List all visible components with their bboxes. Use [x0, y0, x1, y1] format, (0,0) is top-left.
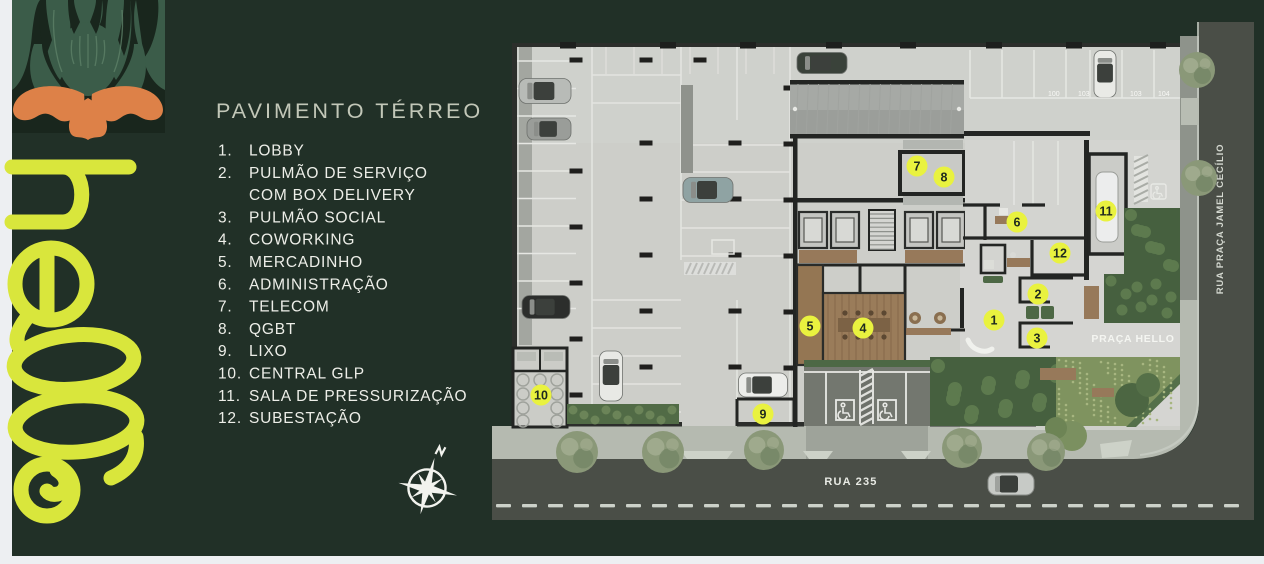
svg-text:COM BOX DELIVERY: COM BOX DELIVERY	[249, 187, 416, 204]
svg-text:1: 1	[991, 313, 998, 327]
svg-text:2.: 2.	[218, 165, 233, 182]
svg-text:11.: 11.	[218, 388, 241, 405]
svg-text:10.: 10.	[218, 366, 242, 383]
svg-text:10: 10	[534, 388, 548, 402]
svg-text:9.: 9.	[218, 343, 233, 360]
svg-text:MERCADINHO: MERCADINHO	[249, 254, 363, 271]
svg-text:11: 11	[1099, 204, 1112, 218]
svg-text:12.: 12.	[218, 410, 242, 427]
svg-text:PULMÃO DE SERVIÇO: PULMÃO DE SERVIÇO	[249, 165, 428, 182]
svg-text:PULMÃO SOCIAL: PULMÃO SOCIAL	[249, 209, 386, 226]
svg-text:4: 4	[860, 321, 867, 335]
svg-text:PRAÇA HELLO: PRAÇA HELLO	[1091, 333, 1174, 345]
svg-text:6: 6	[1014, 215, 1021, 229]
svg-text:6.: 6.	[218, 276, 233, 293]
svg-text:QGBT: QGBT	[249, 321, 296, 338]
svg-text:5: 5	[807, 319, 814, 333]
svg-text:7.: 7.	[218, 299, 233, 316]
svg-text:LIXO: LIXO	[249, 343, 288, 360]
svg-text:SALA DE PRESSURIZAÇÃO: SALA DE PRESSURIZAÇÃO	[249, 388, 467, 405]
svg-text:ADMINISTRAÇÃO: ADMINISTRAÇÃO	[249, 276, 389, 293]
svg-text:2: 2	[1035, 287, 1042, 301]
svg-text:PAVIMENTO TÉRREO: PAVIMENTO TÉRREO	[216, 98, 483, 123]
svg-text:100: 100	[1048, 91, 1060, 98]
svg-text:103: 103	[1130, 91, 1142, 98]
svg-text:9: 9	[760, 407, 767, 421]
svg-text:RUA 235: RUA 235	[824, 476, 877, 488]
svg-text:8.: 8.	[218, 321, 233, 338]
svg-text:RUA PRAÇA JAMEL CECÍLIO: RUA PRAÇA JAMEL CECÍLIO	[1215, 144, 1226, 295]
svg-text:LOBBY: LOBBY	[249, 143, 305, 160]
svg-text:3: 3	[1034, 331, 1041, 345]
svg-text:TELECOM: TELECOM	[249, 299, 330, 316]
svg-text:SUBESTAÇÃO: SUBESTAÇÃO	[249, 410, 362, 427]
svg-text:4.: 4.	[218, 232, 233, 249]
svg-text:12: 12	[1053, 246, 1067, 260]
svg-text:CENTRAL GLP: CENTRAL GLP	[249, 366, 365, 383]
svg-text:104: 104	[1158, 91, 1170, 98]
svg-text:5.: 5.	[218, 254, 233, 271]
svg-text:7: 7	[914, 159, 921, 173]
svg-text:3.: 3.	[218, 209, 233, 226]
svg-text:1.: 1.	[218, 143, 233, 160]
svg-text:COWORKING: COWORKING	[249, 232, 355, 249]
svg-text:103: 103	[1078, 91, 1090, 98]
svg-text:8: 8	[941, 170, 948, 184]
